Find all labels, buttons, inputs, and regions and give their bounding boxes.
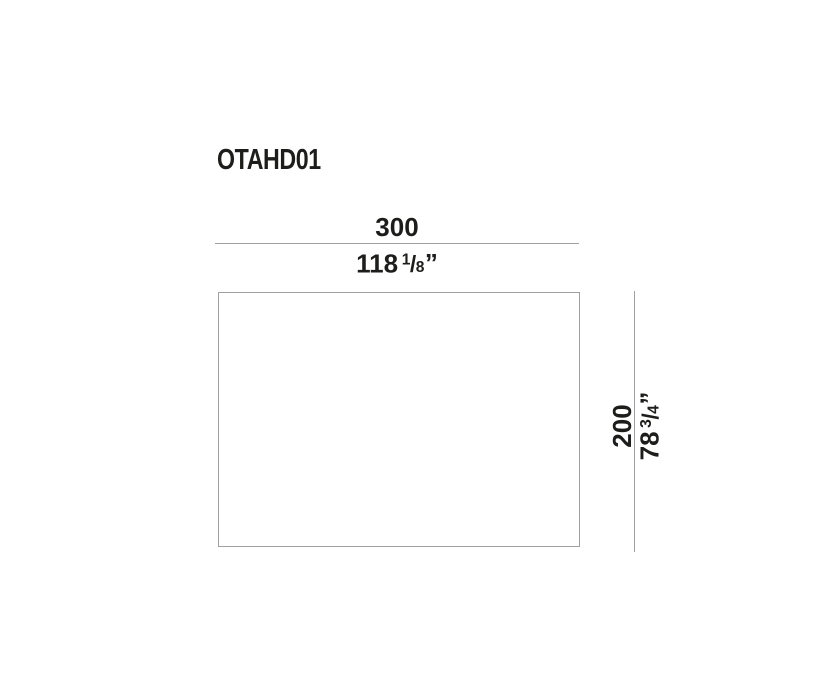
inch-mark: ” bbox=[425, 248, 438, 278]
product-outline-rect bbox=[218, 292, 580, 547]
height-imperial-label: 783/4” bbox=[634, 392, 667, 461]
fraction-numerator: 1 bbox=[402, 252, 410, 269]
imperial-whole: 118 bbox=[356, 248, 398, 278]
inch-mark: ” bbox=[635, 392, 665, 405]
width-metric-label: 300 bbox=[215, 214, 579, 240]
fraction-denominator: 4 bbox=[646, 406, 663, 414]
product-code: OTAHD01 bbox=[217, 146, 321, 175]
fraction-slash: / bbox=[638, 414, 664, 420]
imperial-fraction: 3/4 bbox=[635, 406, 665, 428]
width-dimension-line bbox=[215, 243, 579, 244]
width-imperial-label: 1181/8” bbox=[215, 248, 579, 281]
imperial-fraction: 1/8 bbox=[402, 248, 424, 278]
imperial-whole: 78 bbox=[635, 431, 665, 460]
height-metric-label: 200 bbox=[609, 404, 635, 447]
fraction-denominator: 8 bbox=[416, 259, 424, 276]
spec-sheet-canvas: OTAHD01 300 1181/8” 200 783/4” bbox=[0, 0, 840, 679]
fraction-numerator: 3 bbox=[638, 420, 655, 428]
